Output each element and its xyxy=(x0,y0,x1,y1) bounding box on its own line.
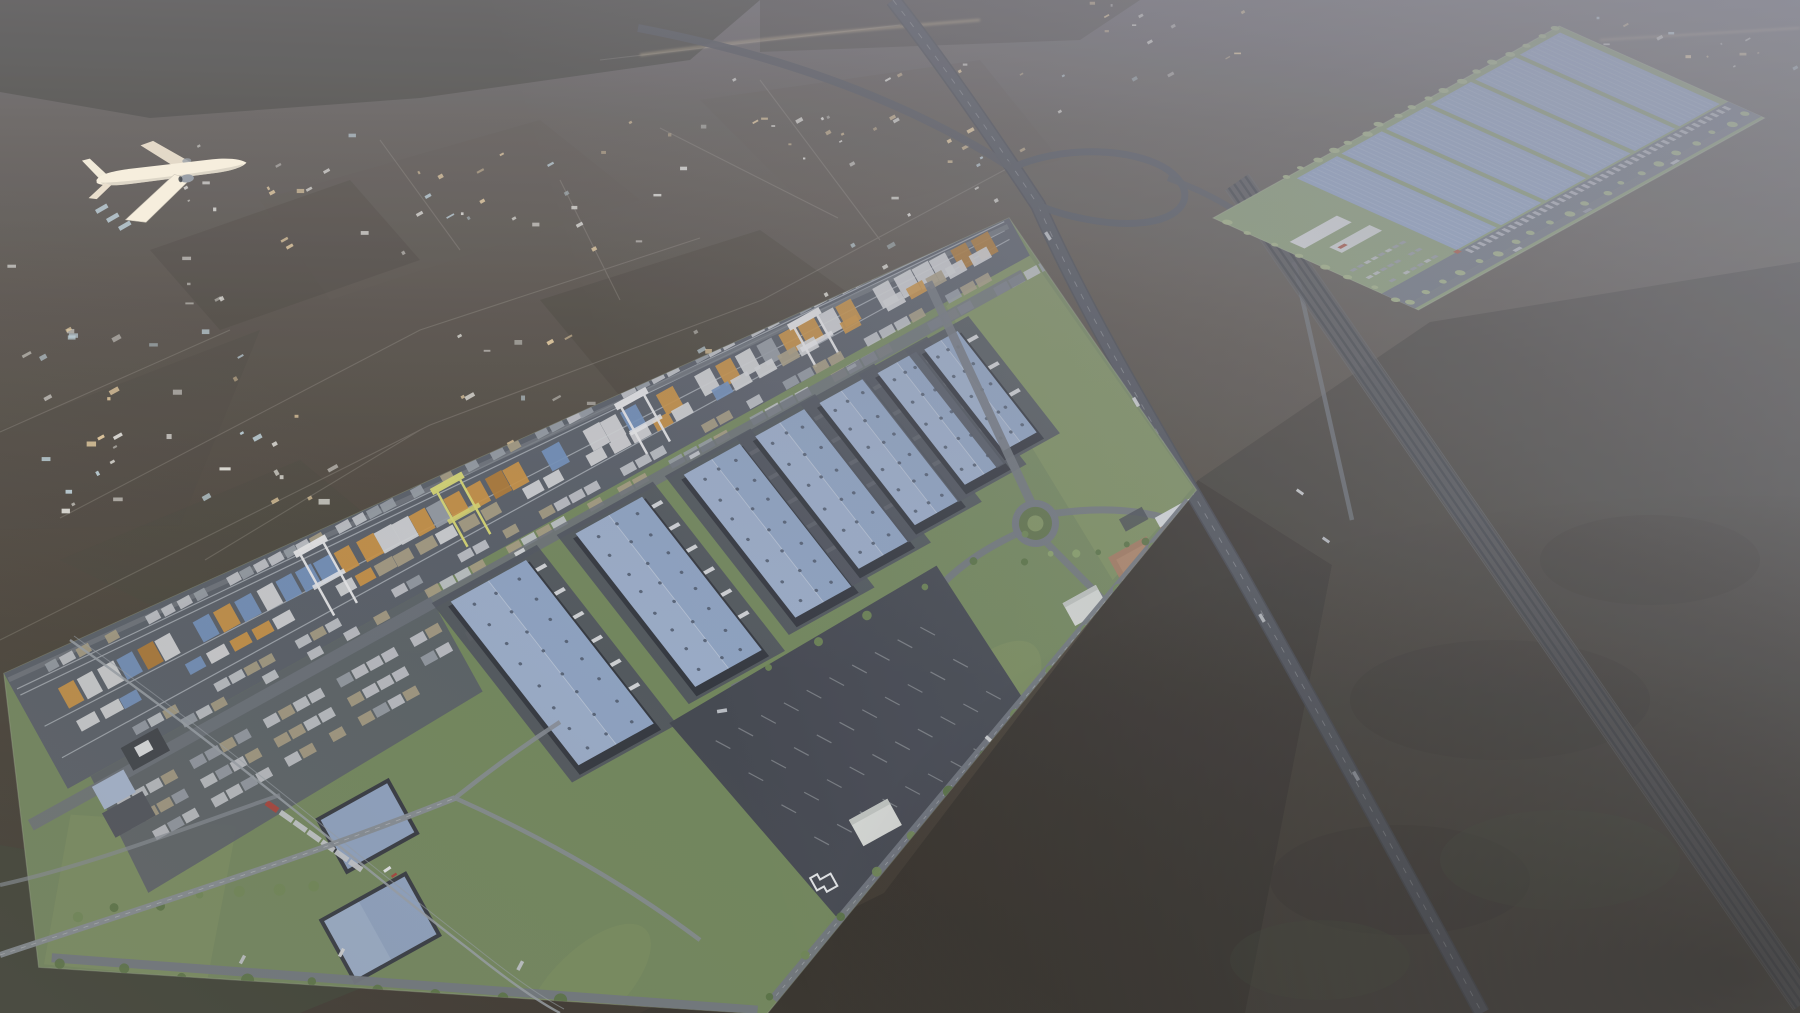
airplane-layer xyxy=(0,0,1800,1013)
airplane-stabilizer xyxy=(87,182,113,200)
airplane xyxy=(81,130,253,229)
airplane-body-group xyxy=(81,130,253,229)
aerial-3d-render xyxy=(0,0,1800,1013)
